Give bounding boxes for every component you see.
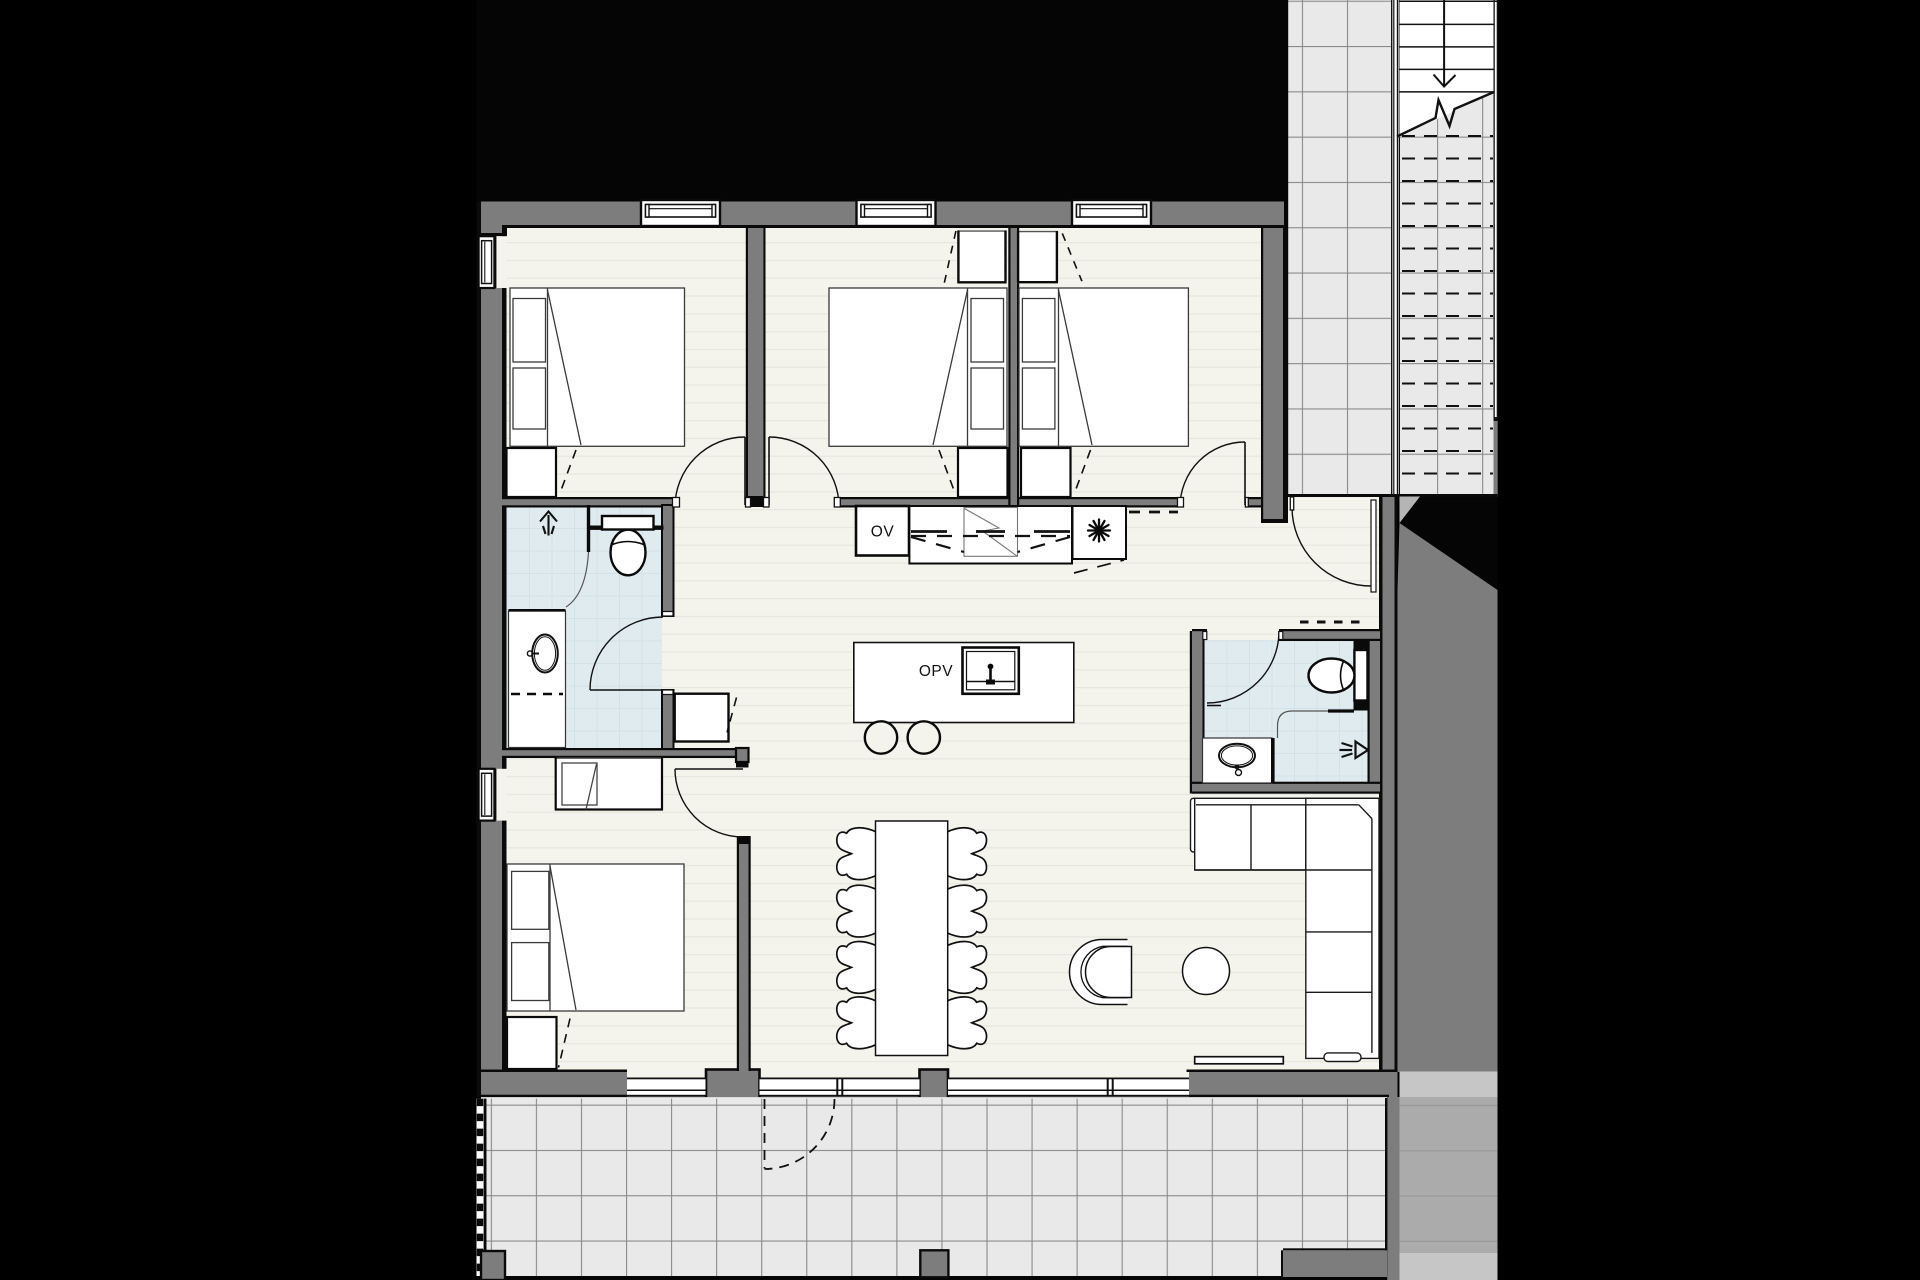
svg-text:OV: OV bbox=[871, 524, 895, 541]
svg-text:OPV: OPV bbox=[919, 663, 953, 680]
